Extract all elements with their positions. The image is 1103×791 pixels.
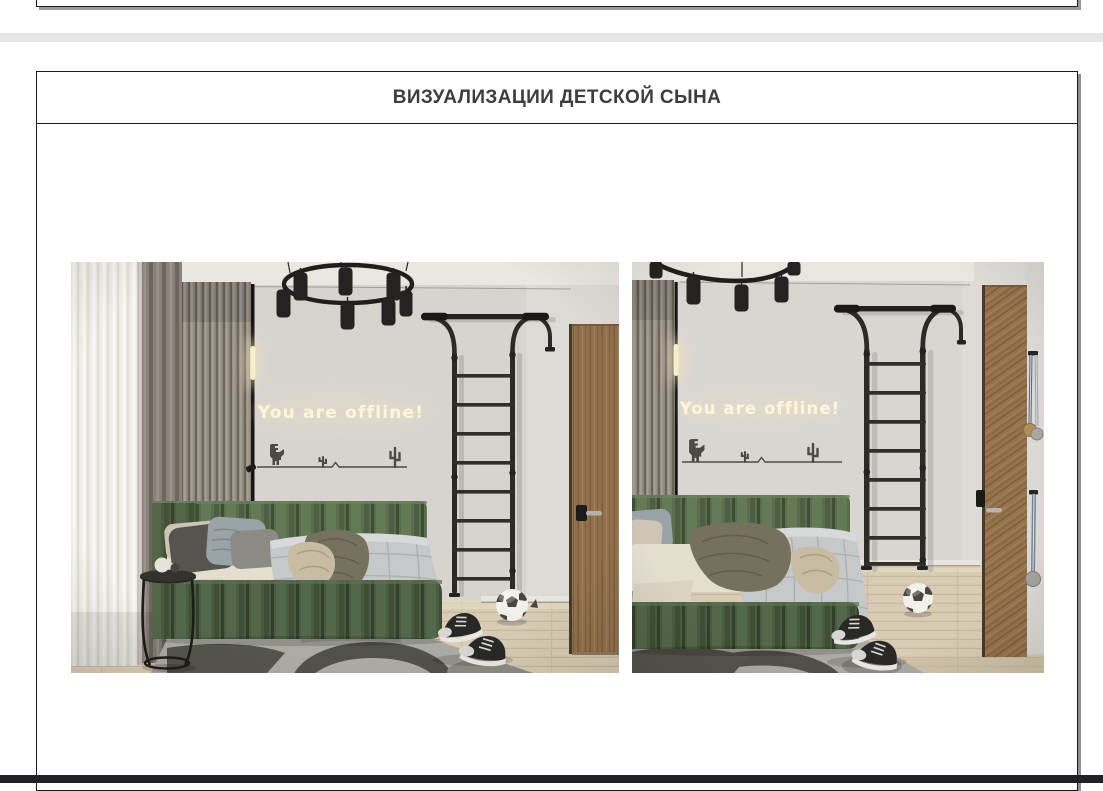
page-gap-band [0,33,1103,42]
frame-header: ВИЗУАЛИЗАЦИИ ДЕТСКОЙ СЫНА [37,72,1077,124]
bottom-window-edge [0,775,1103,783]
page-title: ВИЗУАЛИЗАЦИИ ДЕТСКОЙ СЫНА [393,87,722,109]
render-image-right: You are offline! You are offline! [632,262,1044,673]
content-frame: ВИЗУАЛИЗАЦИИ ДЕТСКОЙ СЫНА [36,71,1078,791]
render-image-left: You are offline! You are offline! [71,262,619,673]
previous-page-frame-edge [36,0,1078,7]
